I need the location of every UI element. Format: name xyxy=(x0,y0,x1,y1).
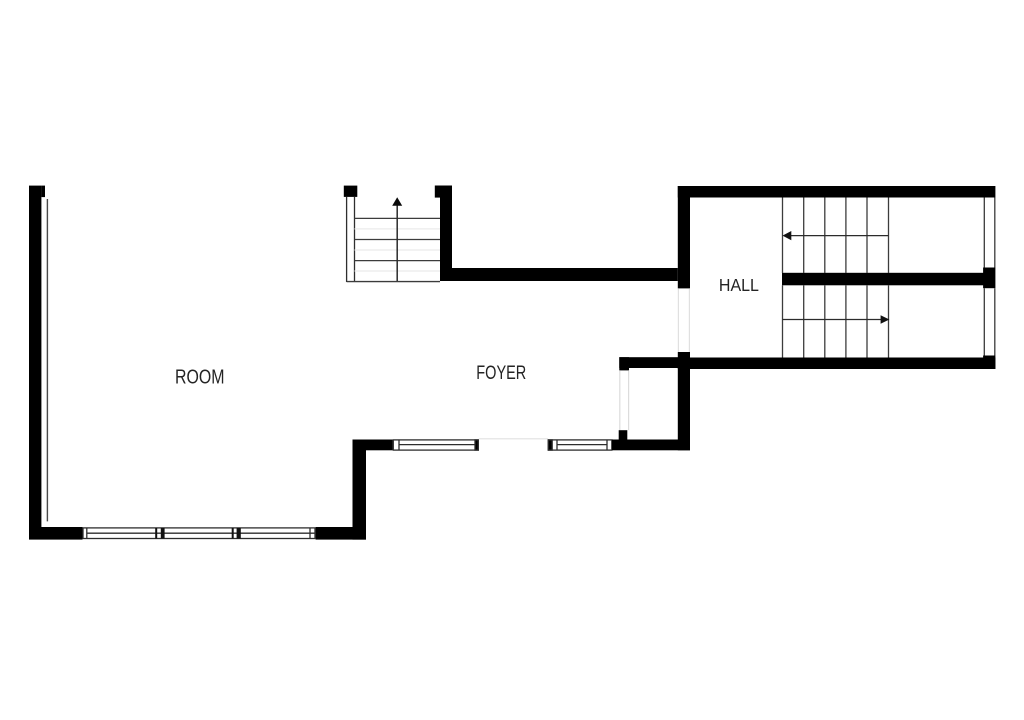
svg-text:FOYER: FOYER xyxy=(476,362,526,384)
svg-text:HALL: HALL xyxy=(719,275,759,295)
svg-text:ROOM: ROOM xyxy=(175,366,225,389)
